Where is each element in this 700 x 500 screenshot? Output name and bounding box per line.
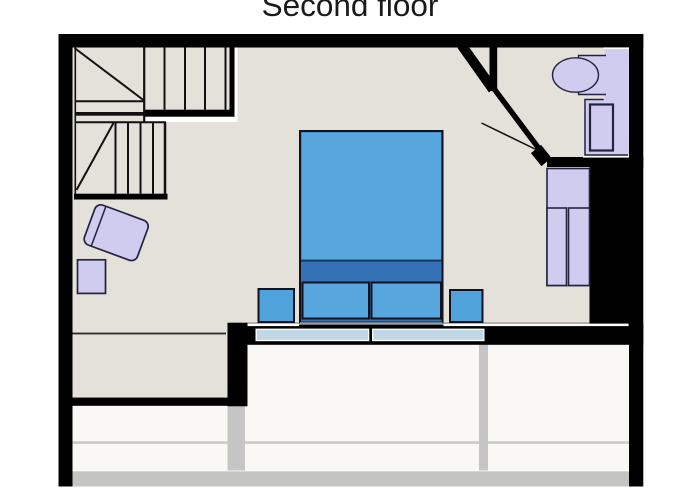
svg-text:Second floor: Second floor [262,0,439,23]
